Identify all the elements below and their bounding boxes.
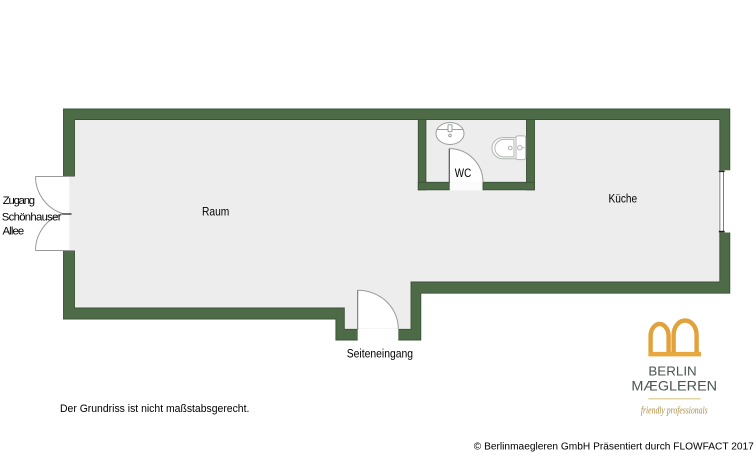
svg-text:© Berlinmaegleren GmbH Präsent: © Berlinmaegleren GmbH Präsentiert durch… <box>474 442 754 453</box>
svg-text:MÆGLEREN: MÆGLEREN <box>631 378 717 394</box>
svg-text:friendly professionals: friendly professionals <box>641 405 708 416</box>
svg-text:Allee: Allee <box>3 226 25 238</box>
svg-text:Raum: Raum <box>202 205 229 219</box>
svg-text:Seiteneingang: Seiteneingang <box>347 347 414 361</box>
svg-text:Zugang: Zugang <box>3 195 35 207</box>
svg-text:Küche: Küche <box>609 192 638 206</box>
svg-text:Schönhauser: Schönhauser <box>2 211 62 223</box>
svg-text:BERLIN: BERLIN <box>648 364 696 379</box>
svg-text:Der Grundriss ist nicht maßsta: Der Grundriss ist nicht maßstabsgerecht. <box>60 403 249 415</box>
svg-text:WC: WC <box>455 168 471 180</box>
